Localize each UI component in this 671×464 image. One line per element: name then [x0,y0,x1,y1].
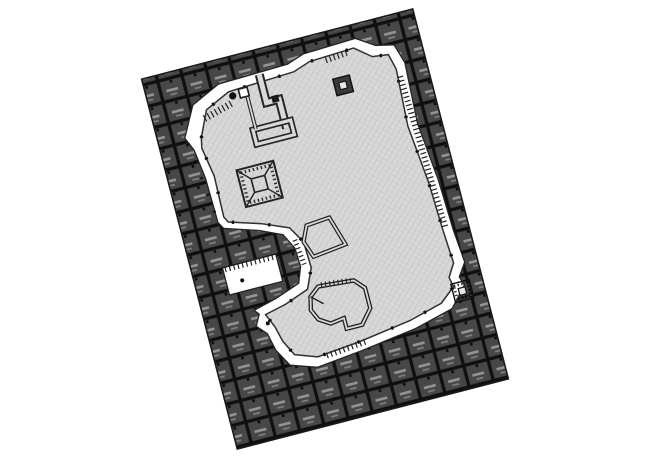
shaft-topright-hole [339,81,348,90]
site-plan-drawing [0,0,671,464]
page [0,0,671,464]
shaft-bottomright-hole [458,287,467,296]
shaft-topright [333,75,354,96]
stair-head-box [238,87,249,98]
